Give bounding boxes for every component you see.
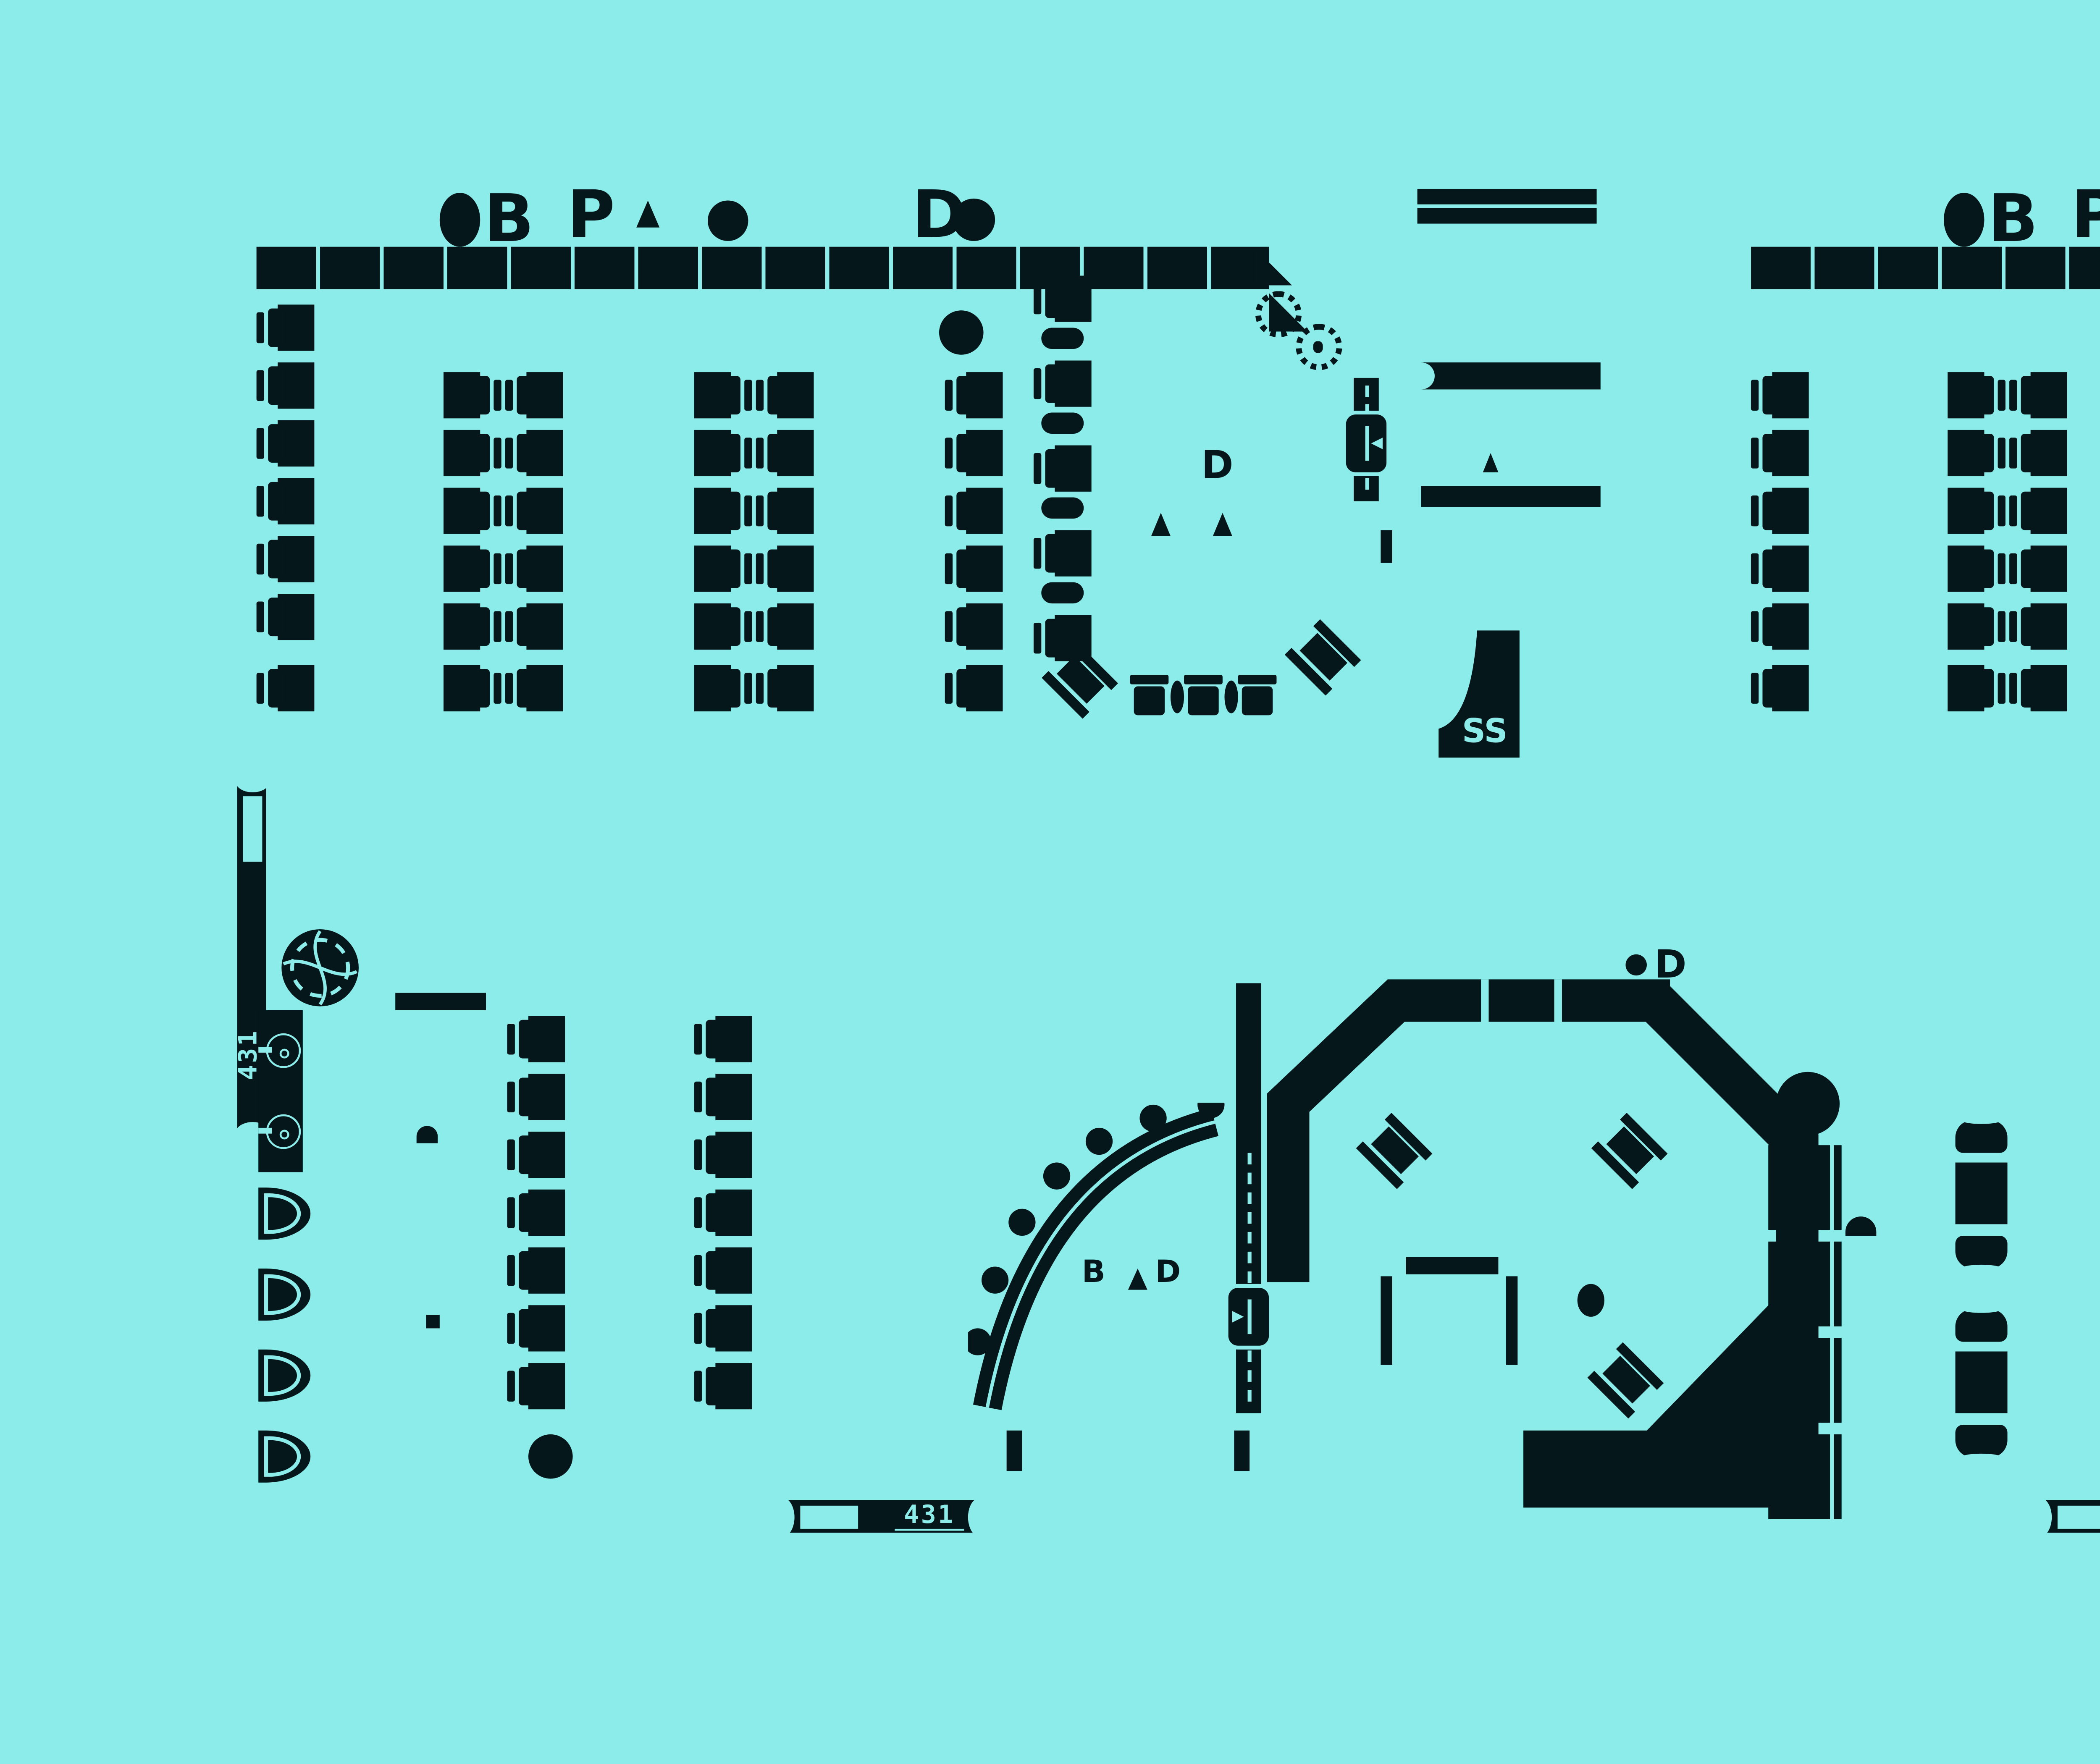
desk-icon xyxy=(1751,545,1809,592)
chair-back xyxy=(1034,538,1041,569)
desk-icon xyxy=(505,430,563,476)
desk-icon xyxy=(507,1074,565,1120)
chair-seat xyxy=(956,376,974,414)
chair-back xyxy=(505,611,513,642)
whiteboard-desk xyxy=(1768,1434,1830,1519)
desk-icon xyxy=(1751,488,1809,534)
chair-seat xyxy=(472,376,490,414)
whiteboard-desk xyxy=(1768,1338,1830,1423)
desk-icon xyxy=(694,1074,752,1120)
chair-seat xyxy=(767,669,785,708)
chair-back xyxy=(744,438,752,468)
triangle-glyph-icon xyxy=(1213,513,1232,536)
chair-seat xyxy=(517,607,534,646)
letter-glyph: D xyxy=(1201,446,1233,484)
chair-seat xyxy=(2021,492,2038,530)
letter-glyph: P xyxy=(567,183,615,249)
desk-icon xyxy=(1948,488,2005,534)
chair-back xyxy=(1034,283,1041,314)
toilet-icon xyxy=(258,1350,310,1402)
chair-seat xyxy=(723,669,740,708)
seat xyxy=(1188,687,1218,716)
chair-back xyxy=(1751,438,1759,468)
door-slot xyxy=(1247,1300,1250,1334)
desk-icon xyxy=(694,1248,752,1294)
desk-icon xyxy=(1034,446,1092,492)
chair-seat xyxy=(1045,280,1062,318)
chair-seat xyxy=(472,669,490,708)
whiteboard-strip xyxy=(1834,1338,1840,1423)
desk-icon xyxy=(694,1363,752,1409)
chair-back xyxy=(507,1197,515,1228)
chair-seat xyxy=(1977,376,1994,414)
chair-back xyxy=(945,673,953,703)
tree-icon xyxy=(280,927,361,1008)
chair-back xyxy=(493,673,501,703)
door-slit xyxy=(1481,979,1488,1024)
chair-seat xyxy=(472,550,490,588)
chair-seat xyxy=(706,1135,723,1174)
chair-seat xyxy=(723,434,740,472)
stair-hatch xyxy=(2058,1505,2100,1528)
chair-seat xyxy=(1762,669,1780,708)
whiteboard-desk xyxy=(1768,1242,1830,1326)
table-bar xyxy=(1417,189,1597,204)
desk-icon xyxy=(694,1305,752,1351)
sink-tap-icon xyxy=(258,1046,272,1052)
chair-back xyxy=(257,370,264,401)
chair-back xyxy=(694,1082,702,1112)
chair-back xyxy=(694,1139,702,1170)
diagonal-desk-icon xyxy=(1285,619,1361,696)
chair-seat xyxy=(706,1020,723,1059)
triangle-glyph-icon xyxy=(1151,513,1171,536)
chair-seat xyxy=(472,607,490,646)
desk-icon xyxy=(257,304,315,351)
lounge-armchair-icon xyxy=(1956,1309,2008,1342)
chair-back xyxy=(493,438,501,468)
chair-back xyxy=(756,495,764,526)
chair-seat xyxy=(706,1367,723,1405)
chair-seat xyxy=(767,492,785,530)
desk-icon xyxy=(945,545,1003,592)
chair-back xyxy=(493,553,501,584)
letter-glyph: D xyxy=(1155,1257,1181,1288)
chair-back xyxy=(2009,380,2017,410)
ottoman-icon xyxy=(1041,498,1084,519)
chair-seat xyxy=(472,434,490,472)
chair-seat xyxy=(519,1251,536,1290)
whiteboard-strip xyxy=(1834,1242,1840,1326)
lounge-table xyxy=(1956,1352,2008,1413)
ss-corner-label: SS xyxy=(1462,713,1508,750)
desk-icon xyxy=(2009,665,2067,711)
chair-back xyxy=(756,673,764,703)
ss-corner: SS xyxy=(1438,630,1520,757)
table-bar xyxy=(1406,1257,1498,1274)
chair-seat xyxy=(268,598,285,636)
chair-seat xyxy=(519,1193,536,1232)
chair-back xyxy=(694,1255,702,1286)
desk-icon xyxy=(694,488,752,534)
pillar xyxy=(1381,530,1392,563)
meeting-room-walls xyxy=(1253,974,1832,1514)
chair-back xyxy=(945,380,953,410)
chair-back xyxy=(507,1082,515,1112)
seat xyxy=(1242,687,1273,716)
desk-icon xyxy=(2009,603,2067,650)
chair-seat xyxy=(1045,449,1062,488)
chair-back xyxy=(2009,438,2017,468)
chair-seat xyxy=(517,550,534,588)
triangle-glyph-icon xyxy=(636,200,659,227)
banner-bar xyxy=(1421,362,1601,389)
back xyxy=(1184,675,1223,684)
toilet-icon xyxy=(258,1431,310,1483)
desk-icon xyxy=(1751,430,1809,476)
desk-icon xyxy=(505,665,563,711)
desk-icon xyxy=(444,665,501,711)
desk-icon xyxy=(945,603,1003,650)
chair-back xyxy=(493,495,501,526)
chair-back xyxy=(1998,611,2005,642)
side-table-icon xyxy=(1171,681,1184,713)
letter-glyph: B xyxy=(1988,187,2038,252)
chair-seat xyxy=(1762,434,1780,472)
chair-seat xyxy=(519,1309,536,1347)
chair-seat xyxy=(767,550,785,588)
chair-seat xyxy=(2021,550,2038,588)
desk-icon xyxy=(507,1305,565,1351)
chair-seat xyxy=(956,607,974,646)
desk-icon xyxy=(507,1190,565,1236)
door-dash-line xyxy=(1247,1153,1250,1402)
pillar xyxy=(1506,1276,1518,1365)
pillar xyxy=(1234,1431,1249,1471)
chair-seat xyxy=(1977,550,1994,588)
chair-back xyxy=(2009,611,2017,642)
chair-seat xyxy=(2021,376,2038,414)
chair-seat xyxy=(767,434,785,472)
chair-seat xyxy=(1762,607,1780,646)
ottoman-icon xyxy=(1041,328,1084,349)
chair-back xyxy=(1751,380,1759,410)
sink-tap-icon xyxy=(258,1127,272,1133)
chair-back xyxy=(1751,495,1759,526)
desk-icon xyxy=(1948,603,2005,650)
chair-seat xyxy=(706,1078,723,1117)
chair-seat xyxy=(956,434,974,472)
toilet-icon xyxy=(258,1187,310,1240)
desk-icon xyxy=(1034,276,1092,322)
chair-back xyxy=(1751,553,1759,584)
wall-corner-icon xyxy=(1253,247,1292,286)
desk-icon xyxy=(257,478,315,524)
chair-seat xyxy=(956,550,974,588)
side-table-icon xyxy=(1224,681,1238,713)
chair-seat xyxy=(1045,619,1062,658)
chair-seat xyxy=(956,669,974,708)
chair-back xyxy=(505,380,513,410)
chair-back xyxy=(257,601,264,632)
plant-icon xyxy=(1296,324,1342,370)
triangle-glyph-icon xyxy=(1128,1269,1147,1290)
chair-back xyxy=(694,1371,702,1401)
desk-icon xyxy=(694,603,752,650)
chair-seat xyxy=(1977,669,1994,708)
chair-back xyxy=(257,486,264,516)
chair-back xyxy=(1751,611,1759,642)
chair-seat xyxy=(2021,607,2038,646)
chair-seat xyxy=(1045,534,1062,573)
door-leaf-icon xyxy=(1228,1288,1269,1346)
letter-glyph: D xyxy=(1654,945,1686,983)
chair-seat xyxy=(472,492,490,530)
chair-back xyxy=(744,380,752,410)
desk-icon xyxy=(945,665,1003,711)
chair-back xyxy=(505,673,513,703)
stair-hatch xyxy=(242,796,261,862)
sink-counter xyxy=(258,1010,303,1172)
chair-back xyxy=(507,1024,515,1054)
chair-back xyxy=(1998,495,2005,526)
letter-glyph: P xyxy=(2071,183,2100,249)
chair-seat xyxy=(519,1078,536,1117)
door-leaf-icon xyxy=(1346,414,1386,472)
chair-back xyxy=(2009,673,2017,703)
desk-icon xyxy=(507,1248,565,1294)
desk-icon xyxy=(1034,361,1092,407)
desk-icon xyxy=(507,1363,565,1409)
chair-seat xyxy=(268,669,285,708)
chair-seat xyxy=(723,607,740,646)
lounge-table xyxy=(1956,1163,2008,1224)
whiteboard-desk xyxy=(1768,1145,1830,1230)
oval-glyph-icon xyxy=(440,193,480,247)
chair-back xyxy=(507,1371,515,1401)
chair-back xyxy=(945,611,953,642)
chair-back xyxy=(505,553,513,584)
letter-glyph: B xyxy=(1082,1257,1105,1288)
desk-icon xyxy=(756,372,814,418)
chair-back xyxy=(694,1313,702,1344)
desk-icon xyxy=(756,545,814,592)
chair-back xyxy=(744,673,752,703)
bench-chair-icon xyxy=(1238,675,1277,717)
chair-back xyxy=(945,438,953,468)
table-bar xyxy=(1417,208,1597,224)
chair-seat xyxy=(268,540,285,579)
chair-back xyxy=(1034,623,1041,653)
chair-back xyxy=(756,380,764,410)
chair-back xyxy=(1751,673,1759,703)
desk-icon xyxy=(1948,665,2005,711)
dot-glyph-icon xyxy=(707,199,747,240)
chair-seat xyxy=(517,434,534,472)
desk-icon xyxy=(505,545,563,592)
desk-icon xyxy=(257,665,315,711)
chair-seat xyxy=(519,1367,536,1405)
desk-icon xyxy=(257,420,315,467)
door-arrow-icon xyxy=(1371,438,1383,449)
lounge-armchair-icon xyxy=(1956,1425,2008,1457)
toilet-icon xyxy=(258,1269,310,1321)
chair-back xyxy=(1998,553,2005,584)
desk-icon xyxy=(1034,530,1092,577)
chair-seat xyxy=(268,482,285,521)
desk-icon xyxy=(945,488,1003,534)
letter-glyph: B xyxy=(484,187,534,252)
banner-notch xyxy=(1408,362,1435,389)
desk-icon xyxy=(694,1016,752,1062)
chair-back xyxy=(257,544,264,574)
desk-icon xyxy=(444,603,501,650)
desk-icon xyxy=(444,545,501,592)
chair-back xyxy=(945,553,953,584)
whiteboard-strip xyxy=(1834,1434,1840,1519)
chair-seat xyxy=(767,376,785,414)
marker-square xyxy=(426,1315,440,1328)
chair-seat xyxy=(1977,492,1994,530)
chair-back xyxy=(2009,553,2017,584)
desk-icon xyxy=(1948,372,2005,418)
floor-plan-stage: SS BPDBPDDDBD 431431431431 xyxy=(0,0,2100,1764)
desk-icon xyxy=(1948,430,2005,476)
chair-back xyxy=(493,380,501,410)
chair-back xyxy=(257,673,264,703)
chair-seat xyxy=(1762,550,1780,588)
whiteboard-strip xyxy=(1834,1145,1840,1230)
desk-icon xyxy=(694,545,752,592)
desk-icon xyxy=(756,488,814,534)
chair-back xyxy=(1034,453,1041,484)
desk-icon xyxy=(756,603,814,650)
chair-back xyxy=(744,553,752,584)
desk-icon xyxy=(1948,545,2005,592)
desk-icon xyxy=(505,603,563,650)
desk-icon xyxy=(694,430,752,476)
stool-icon xyxy=(1845,1216,1876,1236)
table-bar xyxy=(395,993,486,1010)
pillar xyxy=(1007,1431,1022,1471)
desk-icon xyxy=(945,372,1003,418)
desk-icon xyxy=(2009,372,2067,418)
chair-back xyxy=(507,1255,515,1286)
desk-icon xyxy=(694,665,752,711)
chair-back xyxy=(945,495,953,526)
chair-seat xyxy=(706,1309,723,1347)
cap xyxy=(968,1497,991,1536)
chair-seat xyxy=(1762,376,1780,414)
pillar xyxy=(1381,1276,1392,1365)
plant-icon xyxy=(1255,291,1302,337)
dot-glyph-icon xyxy=(1625,953,1646,975)
desk-icon xyxy=(756,665,814,711)
curved-bar-with-stools xyxy=(968,1103,1257,1421)
ottoman-icon xyxy=(1041,582,1084,604)
wall-hatched xyxy=(1751,247,2100,289)
chair-back xyxy=(505,495,513,526)
chair-back xyxy=(2009,495,2017,526)
desk-icon xyxy=(2009,488,2067,534)
triangle-glyph-icon xyxy=(1483,453,1499,472)
chair-seat xyxy=(268,424,285,463)
chair-back xyxy=(505,438,513,468)
bench-chair-icon xyxy=(1184,675,1223,717)
desk-icon xyxy=(756,430,814,476)
chair-back xyxy=(756,438,764,468)
chair-seat xyxy=(956,492,974,530)
chair-seat xyxy=(268,366,285,405)
chair-back xyxy=(1998,438,2005,468)
chair-seat xyxy=(2021,669,2038,708)
table-bar xyxy=(1421,486,1601,507)
lounge-armchair-icon xyxy=(1956,1120,2008,1153)
desk-icon xyxy=(257,594,315,640)
chair-seat xyxy=(706,1251,723,1290)
chair-back xyxy=(507,1313,515,1344)
chair-seat xyxy=(1977,607,1994,646)
bench-chair-icon xyxy=(1130,675,1169,717)
chair-back xyxy=(694,1197,702,1228)
wall-hatched xyxy=(257,247,1269,289)
dot-glyph-icon xyxy=(953,199,995,241)
chair-seat xyxy=(1762,492,1780,530)
desk-icon xyxy=(945,430,1003,476)
chair-seat xyxy=(723,550,740,588)
chair-back xyxy=(1998,673,2005,703)
stair-number: 431 xyxy=(895,1504,964,1531)
chair-seat xyxy=(519,1020,536,1059)
chair-seat xyxy=(517,492,534,530)
chair-back xyxy=(756,611,764,642)
back xyxy=(1130,675,1169,684)
chair-back xyxy=(257,428,264,459)
chair-seat xyxy=(767,607,785,646)
chair-seat xyxy=(706,1193,723,1232)
desk-icon xyxy=(1751,665,1809,711)
lounge-armchair-icon xyxy=(1956,1236,2008,1269)
desk-icon xyxy=(505,372,563,418)
desk-icon xyxy=(1751,603,1809,650)
desk-icon xyxy=(507,1132,565,1178)
desk-icon xyxy=(2009,545,2067,592)
chair-seat xyxy=(517,669,534,708)
chair-back xyxy=(694,1024,702,1054)
chair-seat xyxy=(723,492,740,530)
desk-icon xyxy=(444,430,501,476)
desk-icon xyxy=(507,1016,565,1062)
desk-icon xyxy=(444,372,501,418)
desk-icon xyxy=(694,1132,752,1178)
seat xyxy=(1134,687,1165,716)
door-slot xyxy=(1364,426,1368,461)
desk-icon xyxy=(694,372,752,418)
chair-back xyxy=(1998,380,2005,410)
chair-back xyxy=(493,611,501,642)
chair-seat xyxy=(517,376,534,414)
desk-icon xyxy=(1751,372,1809,418)
desk-icon xyxy=(2009,430,2067,476)
round-table-icon xyxy=(938,309,983,354)
desk-icon xyxy=(257,536,315,582)
chair-back xyxy=(507,1139,515,1170)
chair-seat xyxy=(1977,434,1994,472)
door-slit xyxy=(1554,979,1562,1024)
desk-icon xyxy=(257,362,315,409)
stair-hatch xyxy=(800,1505,858,1528)
chair-seat xyxy=(268,309,285,347)
